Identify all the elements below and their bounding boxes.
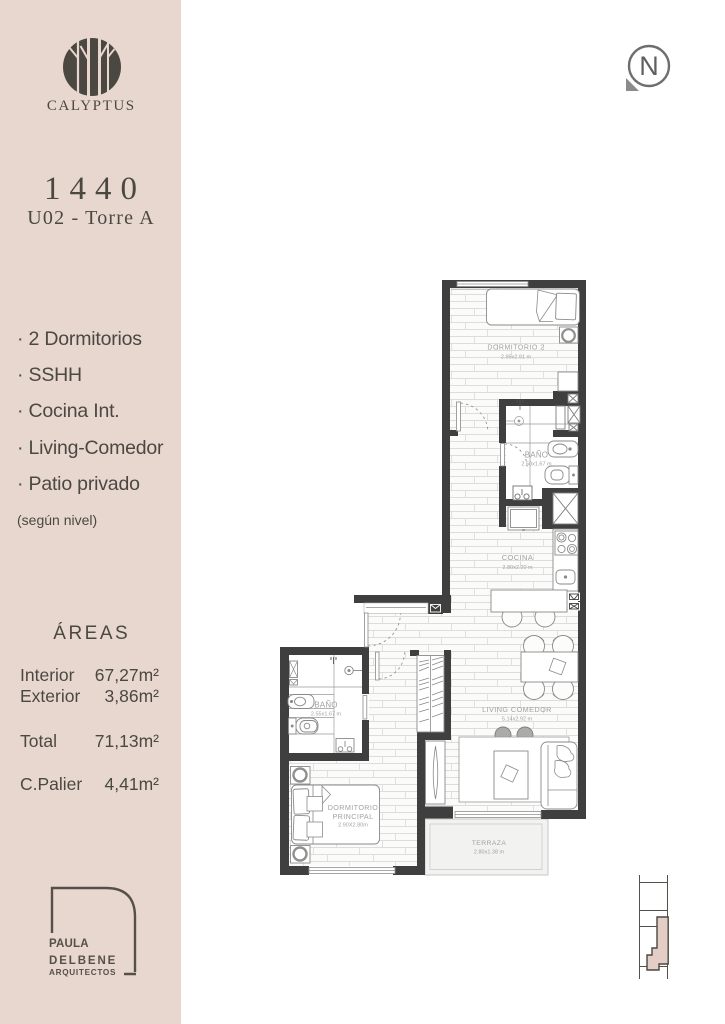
svg-text:2.95x2.91 m: 2.95x2.91 m (501, 355, 532, 361)
svg-text:DORMITORIO 2: DORMITORIO 2 (487, 345, 544, 352)
svg-text:PRINCIPAL: PRINCIPAL (332, 812, 373, 821)
svg-text:BAÑO: BAÑO (525, 451, 548, 460)
svg-text:2.55x1.67 m: 2.55x1.67 m (311, 712, 342, 718)
svg-text:DORMITORIO: DORMITORIO (328, 803, 379, 812)
svg-text:2.80x2.20 m: 2.80x2.20 m (502, 565, 533, 571)
svg-text:BAÑO: BAÑO (314, 701, 337, 710)
svg-text:2.90X2.80m: 2.90X2.80m (338, 823, 368, 829)
svg-text:5.14x2.92 m: 5.14x2.92 m (502, 717, 533, 723)
svg-text:COCINA: COCINA (502, 553, 534, 562)
svg-text:TERRAZA: TERRAZA (472, 840, 507, 847)
svg-text:LIVING COMEDOR: LIVING COMEDOR (482, 705, 552, 714)
svg-text:2.80x1.38 m: 2.80x1.38 m (474, 850, 505, 856)
svg-text:2.50x1.67 m: 2.50x1.67 m (521, 462, 552, 468)
